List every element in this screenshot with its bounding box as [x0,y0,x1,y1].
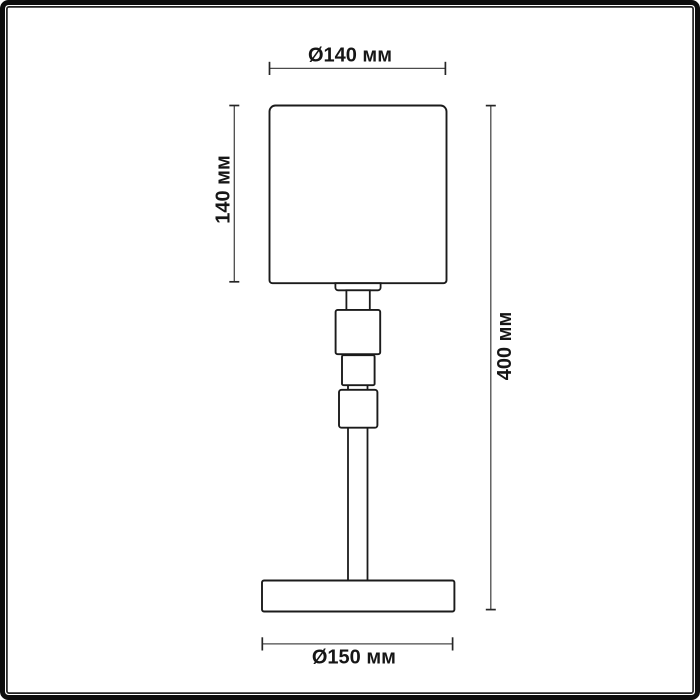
svg-text:Ø150 мм: Ø150 мм [312,647,396,669]
svg-text:Ø140 мм: Ø140 мм [308,45,392,67]
svg-text:140 мм: 140 мм [212,155,234,224]
svg-text:400 мм: 400 мм [494,312,516,381]
